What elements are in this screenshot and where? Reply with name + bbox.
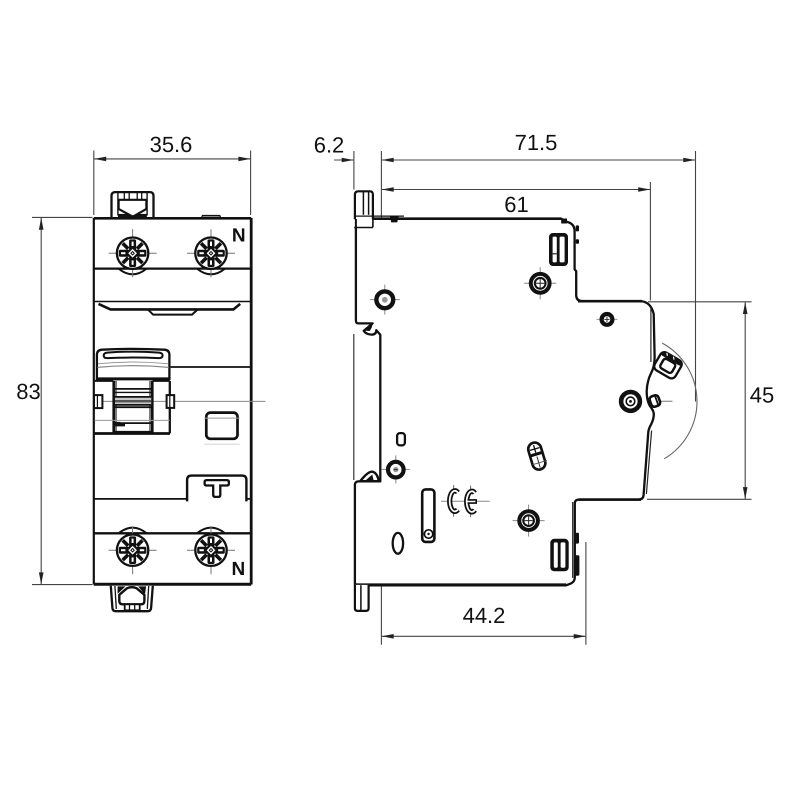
svg-text:35.6: 35.6 bbox=[150, 132, 193, 157]
svg-text:44.2: 44.2 bbox=[463, 603, 506, 628]
svg-text:45: 45 bbox=[750, 383, 774, 408]
svg-text:N: N bbox=[232, 225, 246, 246]
svg-text:61: 61 bbox=[504, 192, 528, 217]
svg-text:6.2: 6.2 bbox=[314, 133, 345, 158]
svg-text:71.5: 71.5 bbox=[515, 130, 558, 155]
svg-text:83: 83 bbox=[16, 379, 40, 404]
svg-text:N: N bbox=[232, 559, 246, 580]
